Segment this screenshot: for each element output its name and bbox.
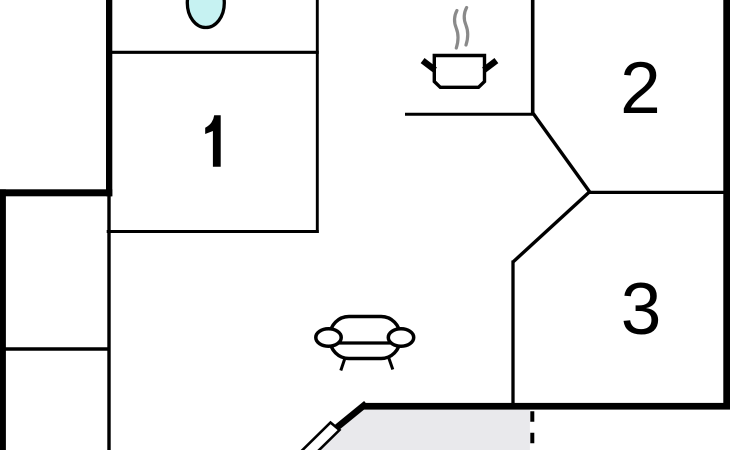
- svg-text:3: 3: [621, 269, 662, 350]
- svg-text:2: 2: [620, 48, 661, 129]
